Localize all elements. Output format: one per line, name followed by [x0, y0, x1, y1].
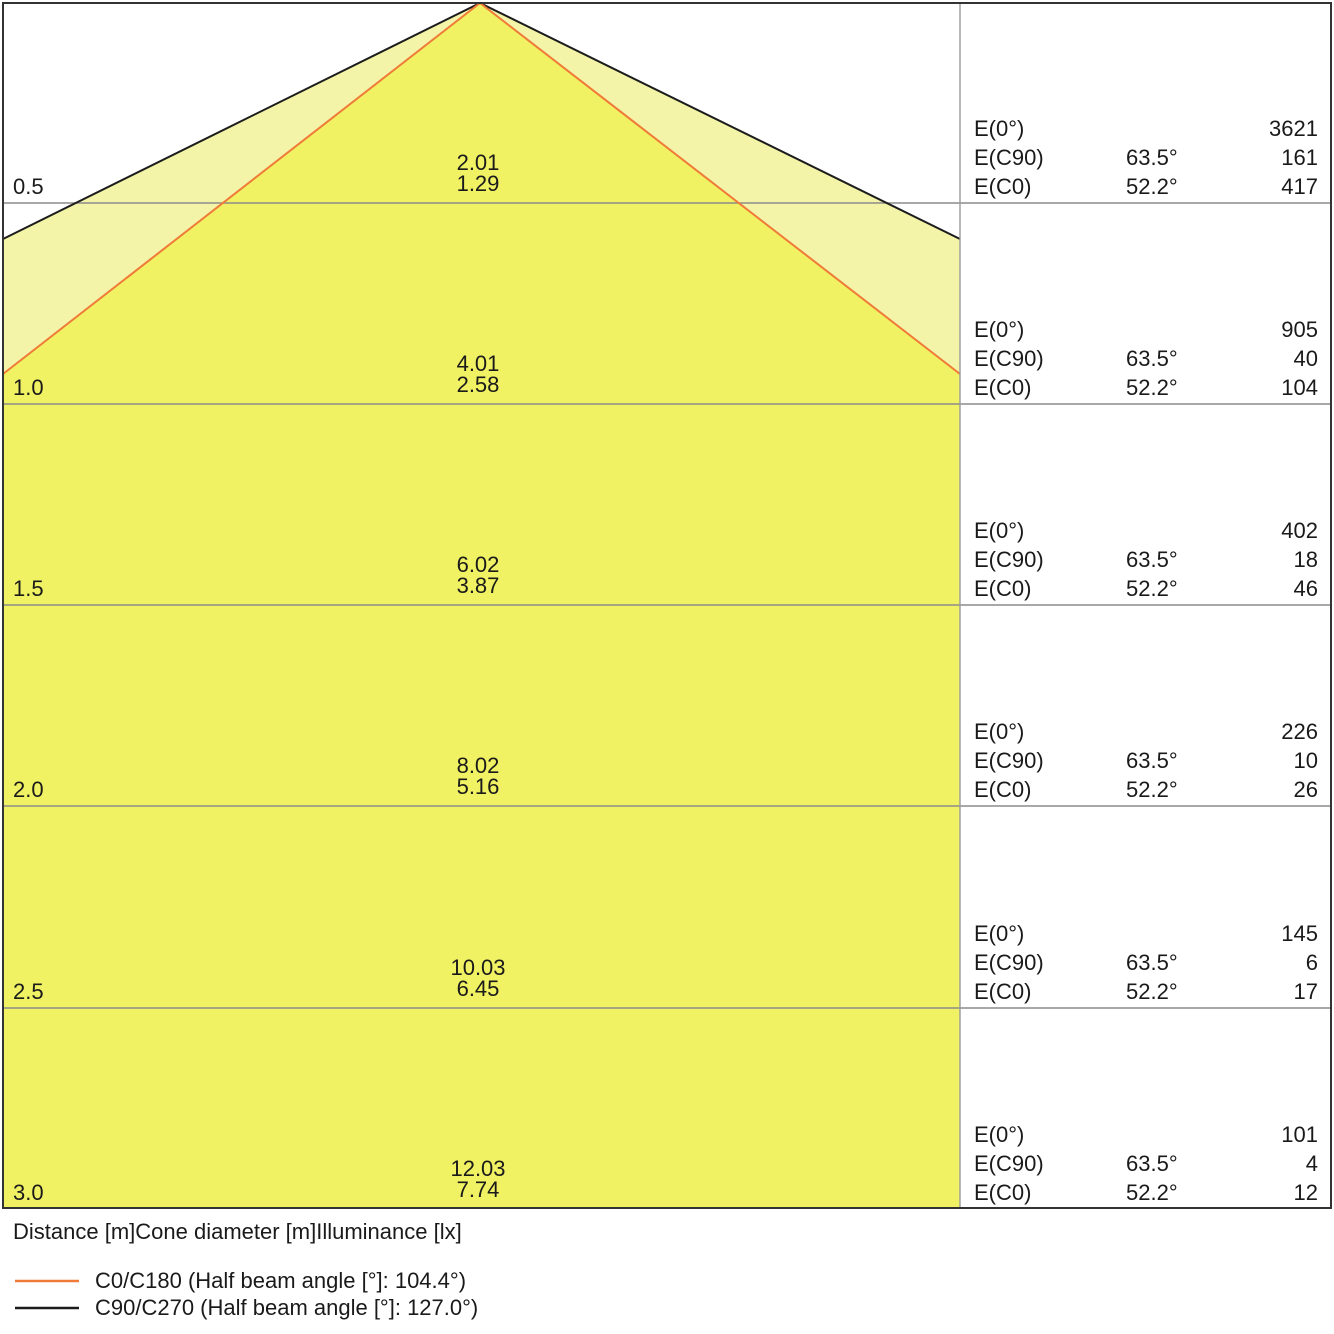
- cone-diameter-c0: 5.16: [368, 776, 588, 797]
- e0-label: E(0°): [974, 719, 1024, 744]
- cone-diameter-c90: 10.03: [368, 957, 588, 978]
- ec0-angle: 52.2°: [1126, 574, 1178, 603]
- ec90-angle: 63.5°: [1126, 143, 1178, 172]
- legend-label-c0: C0/C180 (Half beam angle [°]: 104.4°): [95, 1270, 466, 1292]
- ec90-angle: 63.5°: [1126, 545, 1178, 574]
- c0-line-swatch: [14, 1270, 80, 1292]
- ec0-value: 104: [1281, 373, 1318, 402]
- ec90-value: 4: [1306, 1149, 1318, 1178]
- e0-label: E(0°): [974, 921, 1024, 946]
- cone-diameter-labels: 12.03 7.74: [368, 1158, 588, 1200]
- ec0-angle: 52.2°: [1126, 977, 1178, 1006]
- illuminance-table-cell: E(0°)145 E(C90)63.5°6 E(C0)52.2°17: [974, 919, 1318, 1006]
- axis-units-label: Distance [m]Cone diameter [m]Illuminance…: [13, 1221, 462, 1243]
- ec0-value: 46: [1294, 574, 1318, 603]
- ec90-value: 18: [1294, 545, 1318, 574]
- distance-row-0.5: 0.5 2.01 1.29 E(0°)3621 E(C90)63.5°161 E…: [0, 108, 1334, 203]
- ec90-label: E(C90): [974, 748, 1044, 773]
- e0-value: 905: [1281, 315, 1318, 344]
- distance-label: 2.5: [13, 981, 44, 1003]
- e0-value: 101: [1281, 1120, 1318, 1149]
- illuminance-table-cell: E(0°)402 E(C90)63.5°18 E(C0)52.2°46: [974, 516, 1318, 603]
- ec0-label: E(C0): [974, 174, 1031, 199]
- ec0-angle: 52.2°: [1126, 373, 1178, 402]
- distance-row-3.0: 3.0 12.03 7.74 E(0°)101 E(C90)63.5°4 E(C…: [0, 1114, 1334, 1209]
- ec90-value: 40: [1294, 344, 1318, 373]
- cone-diameter-labels: 10.03 6.45: [368, 957, 588, 999]
- e0-label: E(0°): [974, 1122, 1024, 1147]
- distance-label: 2.0: [13, 779, 44, 801]
- e0-value: 3621: [1269, 114, 1318, 143]
- ec0-label: E(C0): [974, 576, 1031, 601]
- distance-label: 3.0: [13, 1182, 44, 1204]
- cone-diameter-c0: 7.74: [368, 1179, 588, 1200]
- ec0-value: 26: [1294, 775, 1318, 804]
- cone-diameter-labels: 6.02 3.87: [368, 554, 588, 596]
- ec90-value: 161: [1281, 143, 1318, 172]
- distance-row-1.5: 1.5 6.02 3.87 E(0°)402 E(C90)63.5°18 E(C…: [0, 510, 1334, 605]
- light-cone-diagram-panel: 0.5 2.01 1.29 E(0°)3621 E(C90)63.5°161 E…: [0, 0, 1334, 1334]
- e0-label: E(0°): [974, 116, 1024, 141]
- ec0-label: E(C0): [974, 777, 1031, 802]
- distance-label: 1.5: [13, 578, 44, 600]
- legend-label-c90: C90/C270 (Half beam angle [°]: 127.0°): [95, 1297, 478, 1319]
- cone-diameter-labels: 8.02 5.16: [368, 755, 588, 797]
- cone-diameter-c90: 2.01: [368, 152, 588, 173]
- ec90-angle: 63.5°: [1126, 948, 1178, 977]
- distance-row-1.0: 1.0 4.01 2.58 E(0°)905 E(C90)63.5°40 E(C…: [0, 309, 1334, 404]
- cone-diameter-c90: 8.02: [368, 755, 588, 776]
- ec90-label: E(C90): [974, 547, 1044, 572]
- c90-line-swatch: [14, 1297, 80, 1319]
- e0-value: 402: [1281, 516, 1318, 545]
- e0-value: 145: [1281, 919, 1318, 948]
- ec0-label: E(C0): [974, 1180, 1031, 1205]
- cone-diameter-c90: 4.01: [368, 353, 588, 374]
- cone-diameter-c0: 6.45: [368, 978, 588, 999]
- e0-label: E(0°): [974, 518, 1024, 543]
- illuminance-table-cell: E(0°)3621 E(C90)63.5°161 E(C0)52.2°417: [974, 114, 1318, 201]
- ec0-value: 417: [1281, 172, 1318, 201]
- illuminance-table-cell: E(0°)905 E(C90)63.5°40 E(C0)52.2°104: [974, 315, 1318, 402]
- ec0-label: E(C0): [974, 375, 1031, 400]
- ec90-angle: 63.5°: [1126, 1149, 1178, 1178]
- distance-row-2.5: 2.5 10.03 6.45 E(0°)145 E(C90)63.5°6 E(C…: [0, 913, 1334, 1008]
- distance-row-2.0: 2.0 8.02 5.16 E(0°)226 E(C90)63.5°10 E(C…: [0, 711, 1334, 806]
- cone-diameter-c90: 6.02: [368, 554, 588, 575]
- ec0-angle: 52.2°: [1126, 172, 1178, 201]
- cone-diameter-c0: 2.58: [368, 374, 588, 395]
- ec90-angle: 63.5°: [1126, 344, 1178, 373]
- ec90-label: E(C90): [974, 950, 1044, 975]
- distance-label: 1.0: [13, 377, 44, 399]
- ec0-value: 17: [1294, 977, 1318, 1006]
- illuminance-table-cell: E(0°)101 E(C90)63.5°4 E(C0)52.2°12: [974, 1120, 1318, 1207]
- ec90-label: E(C90): [974, 145, 1044, 170]
- e0-value: 226: [1281, 717, 1318, 746]
- cone-diameter-labels: 4.01 2.58: [368, 353, 588, 395]
- ec90-label: E(C90): [974, 1151, 1044, 1176]
- ec0-label: E(C0): [974, 979, 1031, 1004]
- cone-diameter-c90: 12.03: [368, 1158, 588, 1179]
- cone-diameter-c0: 1.29: [368, 173, 588, 194]
- illuminance-table-cell: E(0°)226 E(C90)63.5°10 E(C0)52.2°26: [974, 717, 1318, 804]
- ec90-value: 10: [1294, 746, 1318, 775]
- ec0-value: 12: [1294, 1178, 1318, 1207]
- cone-diameter-c0: 3.87: [368, 575, 588, 596]
- distance-label: 0.5: [13, 176, 44, 198]
- ec90-label: E(C90): [974, 346, 1044, 371]
- ec0-angle: 52.2°: [1126, 775, 1178, 804]
- ec0-angle: 52.2°: [1126, 1178, 1178, 1207]
- ec90-angle: 63.5°: [1126, 746, 1178, 775]
- ec90-value: 6: [1306, 948, 1318, 977]
- e0-label: E(0°): [974, 317, 1024, 342]
- cone-diameter-labels: 2.01 1.29: [368, 152, 588, 194]
